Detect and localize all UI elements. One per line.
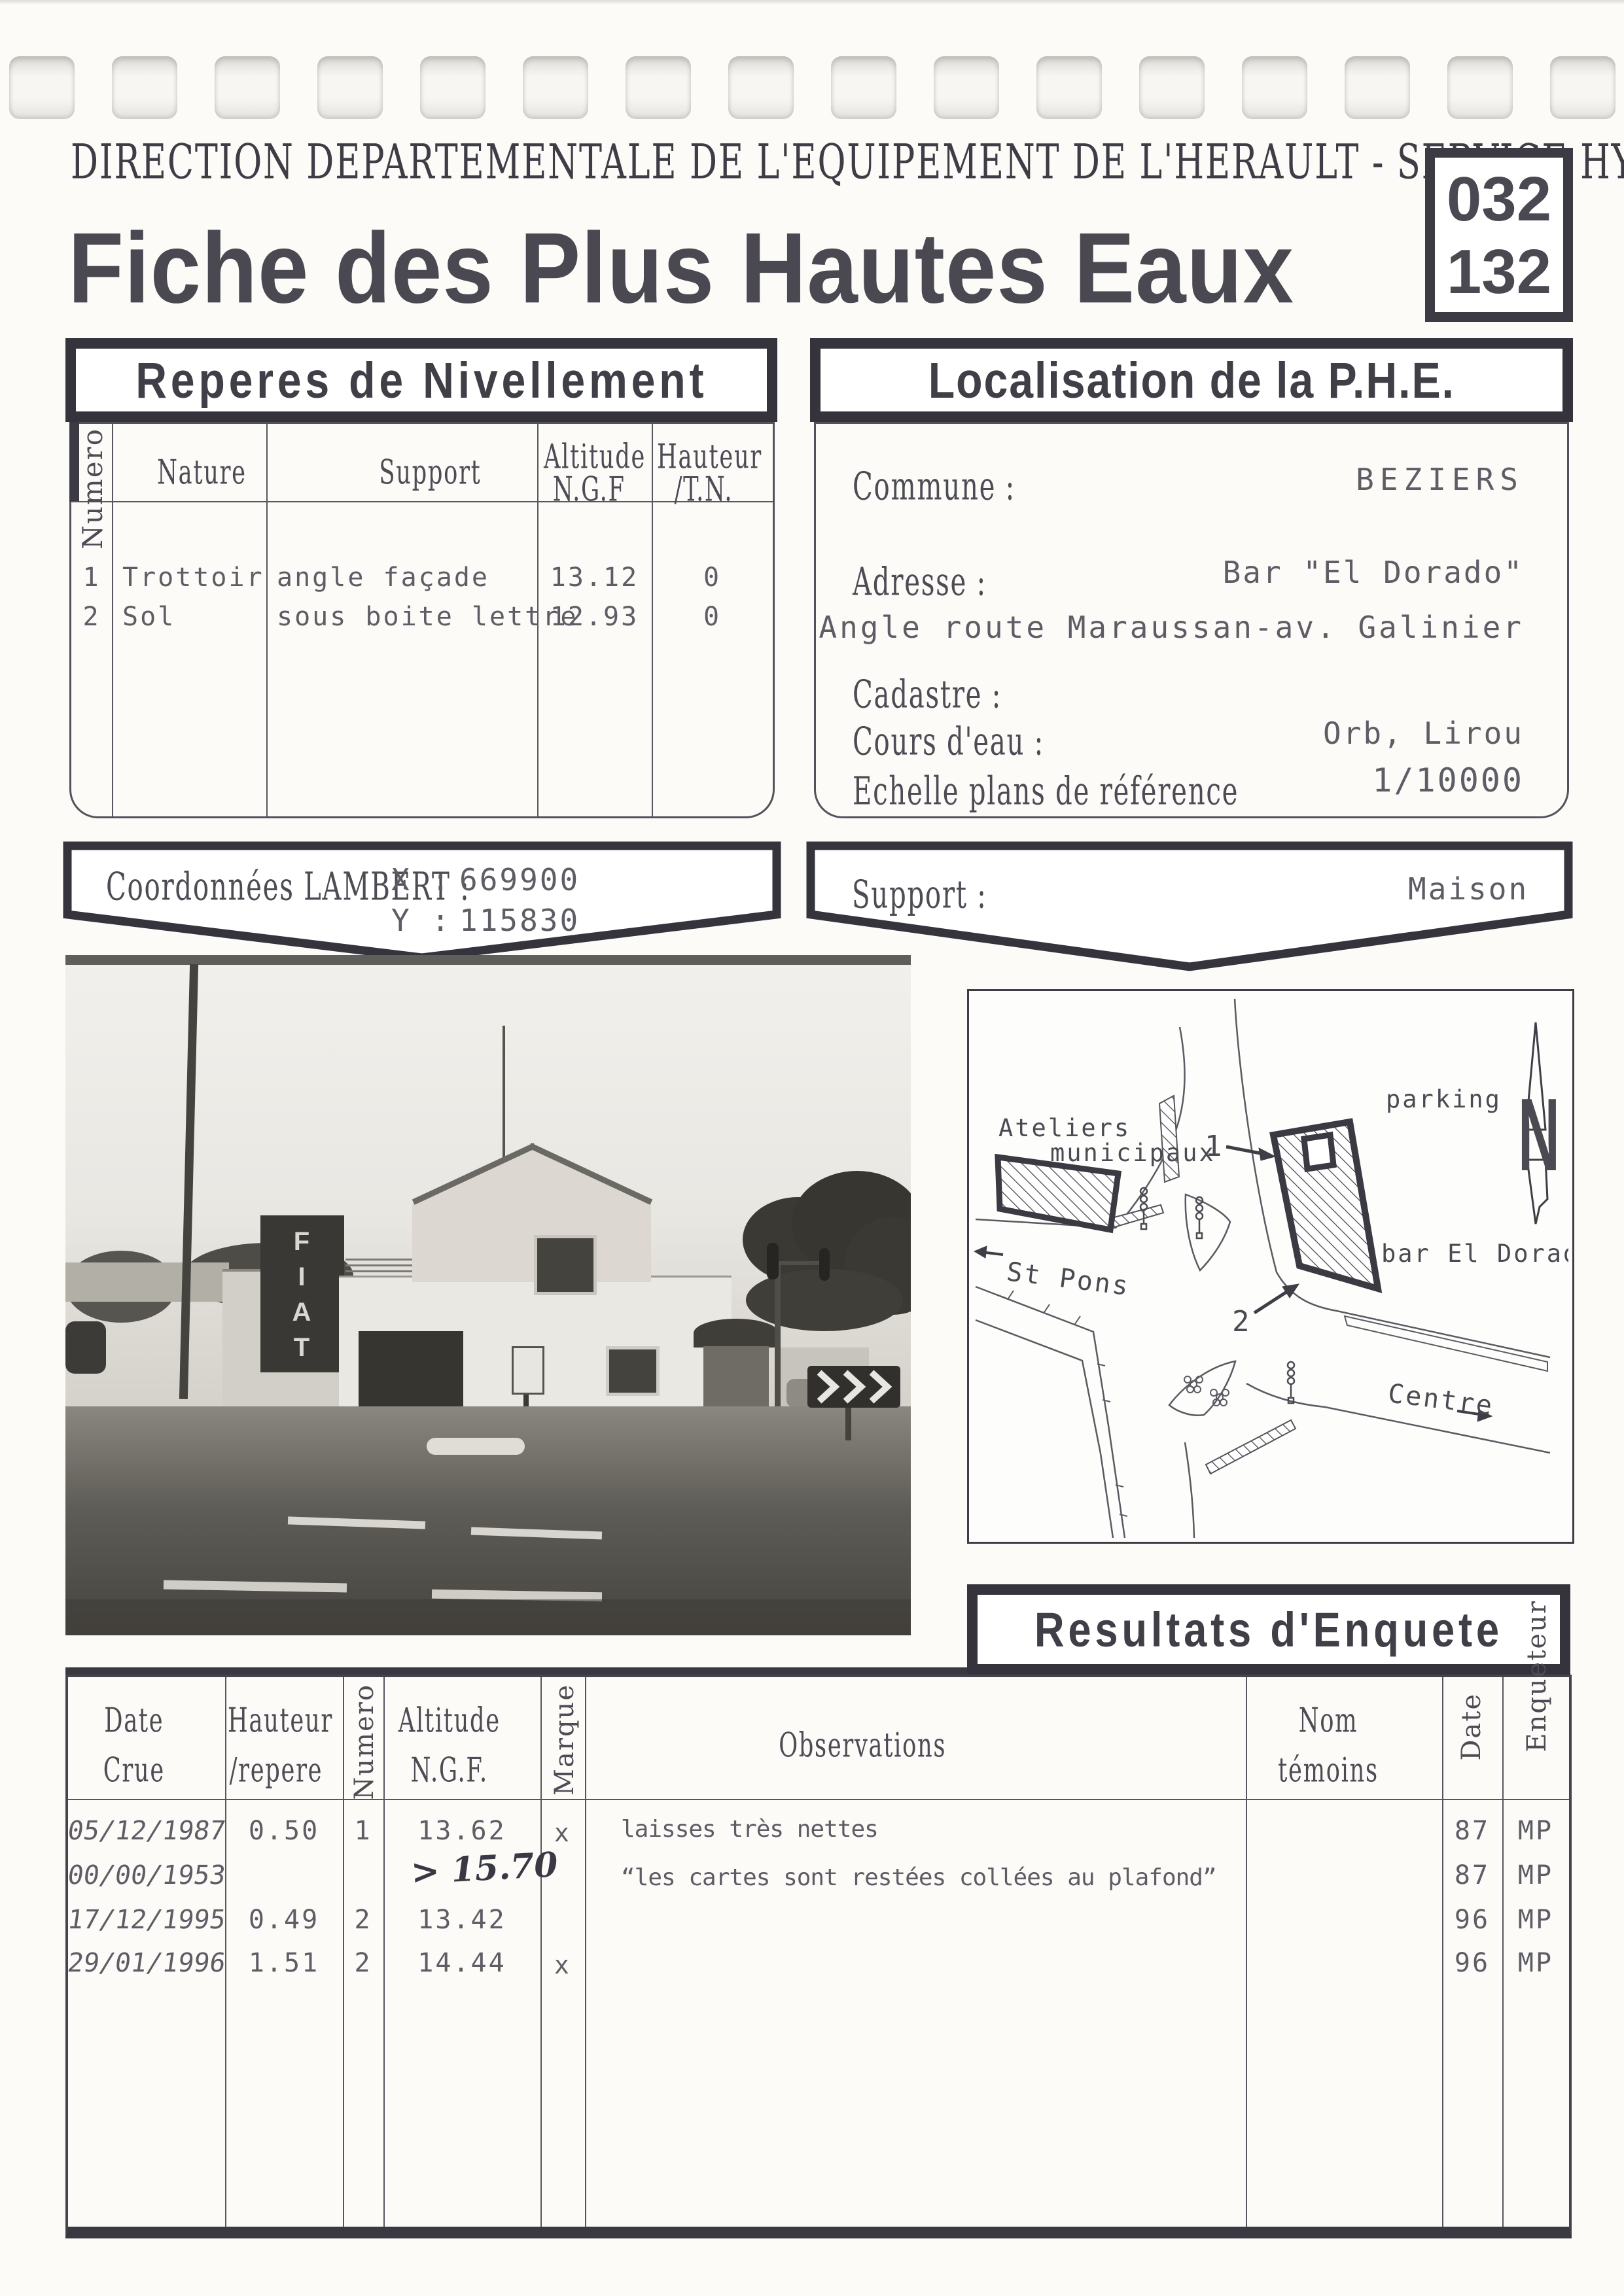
cell-marque: x [540,1951,585,1979]
location-map: N Ateliers municipaux parking bar El Dor… [969,991,1568,1538]
cell-altitude: 14.44 [383,1948,540,1978]
cell-hauteur: 1.51 [225,1948,343,1978]
cell-hauteur: 0 [652,602,773,632]
localisation-title-text: Localisation de la P.H.E. [928,351,1455,409]
cell-altitude: 12.93 [537,602,652,632]
results-panel-title: Resultats d'Enquete [967,1584,1570,1675]
support-label: Support : [852,873,987,917]
cell-date-crue: 00/00/1953 [65,1860,228,1890]
binding-hole [728,56,794,119]
col-header-hauteur-2: /repere [228,1750,325,1790]
map-flower-symbols [1184,1376,1229,1406]
photo-billboard-text: FIAT [287,1227,316,1368]
cell-numero: 1 [71,563,112,593]
map-label-bar: bar El Dorado [1381,1240,1568,1268]
col-header-altitude-2: N.G.F [544,470,635,509]
cell-enqueteur: MP [1502,1905,1569,1935]
binding-hole [934,56,999,119]
localisation-panel: Commune : BEZIERS Adresse : Bar "El Dora… [814,422,1569,818]
cell-altitude-handwritten: > 15.70 [410,1845,559,1892]
reperes-panel-title: Reperes de Nivellement [65,338,777,422]
binding-hole [420,56,485,119]
cell-marque: x [540,1818,585,1847]
agency-header: DIRECTION DEPARTEMENTALE DE L'EQUIPEMENT… [71,135,1624,190]
doc-number-top: 032 [1435,163,1563,235]
photo-traffic-light [819,1248,830,1281]
photo-foreground-shadow [65,1599,911,1635]
photo-wall [65,1262,229,1302]
photo-sign [512,1346,544,1395]
reperes-title-text: Reperes de Nivellement [135,351,707,409]
photo-traffic-light [767,1243,779,1279]
cell-nature: Trottoir [122,563,264,593]
cell-observations: laisses très nettes [621,1816,878,1843]
photo-gable [412,1148,651,1282]
coordonnees-x-label: X : [391,862,451,897]
binding-hole [523,56,588,119]
scanned-form-page: DIRECTION DEPARTEMENTALE DE L'EQUIPEMENT… [0,0,1624,2296]
photo-signal-pole [775,1264,781,1408]
map-traffic-light-symbols [1140,1188,1294,1403]
binding-hole [9,56,75,119]
results-table: Date Crue Hauteur /repere Numero Altitud… [65,1675,1572,2238]
col-header-marque: Marque [550,1684,580,1796]
binding-hole [1036,56,1102,119]
binding-hole [317,56,383,119]
cell-support: angle façade [277,563,489,593]
doc-number-box: 032 132 [1425,148,1573,322]
commune-value: BEZIERS [1356,462,1524,497]
photo-car-left [65,1321,106,1374]
col-header-altitude-2: N.G.F. [383,1750,516,1790]
coordonnees-y-label: Y : [391,903,451,938]
map-marker-2-label: 2 [1232,1305,1252,1338]
cell-numero: 2 [343,1905,383,1935]
coordonnees-y-value: 115830 [459,903,580,938]
photo-garage-door [359,1331,463,1416]
col-header-date-2: Crue [68,1750,200,1790]
binding-hole [1345,56,1410,119]
cadastre-label: Cadastre : [853,672,1002,717]
photo-edge-smudge [65,955,911,965]
coordonnees-x-value: 669900 [459,862,580,897]
photo-sign-post [845,1408,851,1440]
cell-date: 96 [1442,1905,1502,1935]
photo-doorway [703,1346,769,1416]
reperes-table: Numero Nature Support Altitude N.G.F Hau… [69,422,775,818]
cell-date-crue: 17/12/1995 [65,1905,228,1935]
map-marker-1-label: 1 [1205,1130,1224,1163]
table-divider [112,424,113,816]
col-header-altitude-1: Altitude [383,1701,516,1740]
map-north-letter: N [1518,1077,1560,1192]
binding-hole [1447,56,1513,119]
map-bar-notch [1304,1135,1333,1169]
cell-altitude: 13.42 [383,1905,540,1935]
photo-window [606,1346,660,1396]
cell-date: 96 [1442,1948,1502,1978]
cell-hauteur: 0.49 [225,1905,343,1935]
cell-observations: “les cartes sont restées collées au plaf… [621,1864,1216,1891]
photo-chevron-sign [807,1366,900,1408]
col-header-support: Support [353,453,508,492]
table-divider [266,424,268,816]
cell-altitude: 13.12 [537,563,652,593]
cell-enqueteur: MP [1502,1860,1569,1890]
echelle-label: Echelle plans de référence [853,769,1239,814]
cell-date: 87 [1442,1816,1502,1846]
map-boundary-ticks [1008,1291,1127,1516]
table-header-divider [68,1799,1569,1800]
cell-nature: Sol [122,602,175,632]
localisation-panel-title: Localisation de la P.H.E. [810,338,1573,422]
cell-hauteur: 0 [652,563,773,593]
cell-enqueteur: MP [1502,1816,1569,1846]
cell-numero: 1 [343,1816,383,1846]
col-header-numero: Numero [77,428,109,549]
map-label-ateliers-2: municipaux [1050,1139,1216,1167]
cell-altitude: 13.62 [383,1816,540,1846]
site-photo: FIAT [65,955,911,1635]
binding-hole [1242,56,1307,119]
binding-hole [1550,56,1615,119]
adresse-value-1: Bar "El Dorado" [1223,555,1524,590]
col-header-nom-2: témoins [1246,1750,1411,1790]
photo-billboard: FIAT [260,1215,344,1372]
photo-curb-stone [427,1438,525,1455]
map-label-centre: Centre [1386,1378,1496,1421]
binding-hole [626,56,691,119]
adresse-value-2: Angle route Maraussan-av. Galinier [819,610,1524,645]
map-label-parking: parking [1386,1085,1502,1113]
commune-label: Commune : [853,464,1015,509]
cell-hauteur: 0.50 [225,1816,343,1846]
binding-hole [215,56,280,119]
photo-awning [694,1319,779,1348]
cell-numero: 2 [71,602,112,632]
photo-gable-window [534,1235,597,1295]
col-header-observations: Observations [585,1726,1140,1765]
binding-hole [831,56,896,119]
scan-top-edge [0,0,1624,5]
map-label-st-pons: St Pons [1005,1257,1132,1302]
cell-date-crue: 05/12/1987 [65,1816,228,1846]
cell-date-crue: 29/01/1996 [65,1948,228,1978]
map-label-ateliers-1: Ateliers [998,1114,1131,1142]
binding-hole [1139,56,1205,119]
map-ateliers-building [998,1157,1118,1230]
adresse-label: Adresse : [853,560,987,604]
cell-numero: 2 [343,1948,383,1978]
doc-number-bottom: 132 [1435,235,1563,308]
cours-label: Cours d'eau : [853,720,1044,764]
map-traffic-islands [1169,1194,1235,1416]
support-value: Maison [1408,871,1528,907]
echelle-value: 1/10000 [1372,761,1524,799]
photo-pole [179,964,198,1399]
cell-support: sous boite lettre [277,602,578,632]
cours-value: Orb, Lirou [1323,716,1524,751]
col-header-hauteur-2: /T.N. [657,470,750,509]
col-header-hauteur-1: Hauteur [228,1701,325,1740]
binding-hole [112,56,177,119]
col-header-date-1: Date [68,1701,200,1740]
col-header-nature: Nature [155,453,249,492]
col-header-numero: Numero [349,1684,380,1800]
location-map-box: N Ateliers municipaux parking bar El Dor… [967,989,1574,1544]
cell-enqueteur: MP [1502,1948,1569,1978]
results-title-text: Resultats d'Enquete [1034,1601,1503,1657]
col-header-date-rot: Date [1456,1693,1487,1761]
page-title: Fiche des Plus Hautes Eaux [68,211,1294,326]
col-header-nom-1: Nom [1246,1701,1411,1740]
cell-date: 87 [1442,1860,1502,1890]
col-header-enqueteur: Enqueteur [1522,1600,1552,1752]
